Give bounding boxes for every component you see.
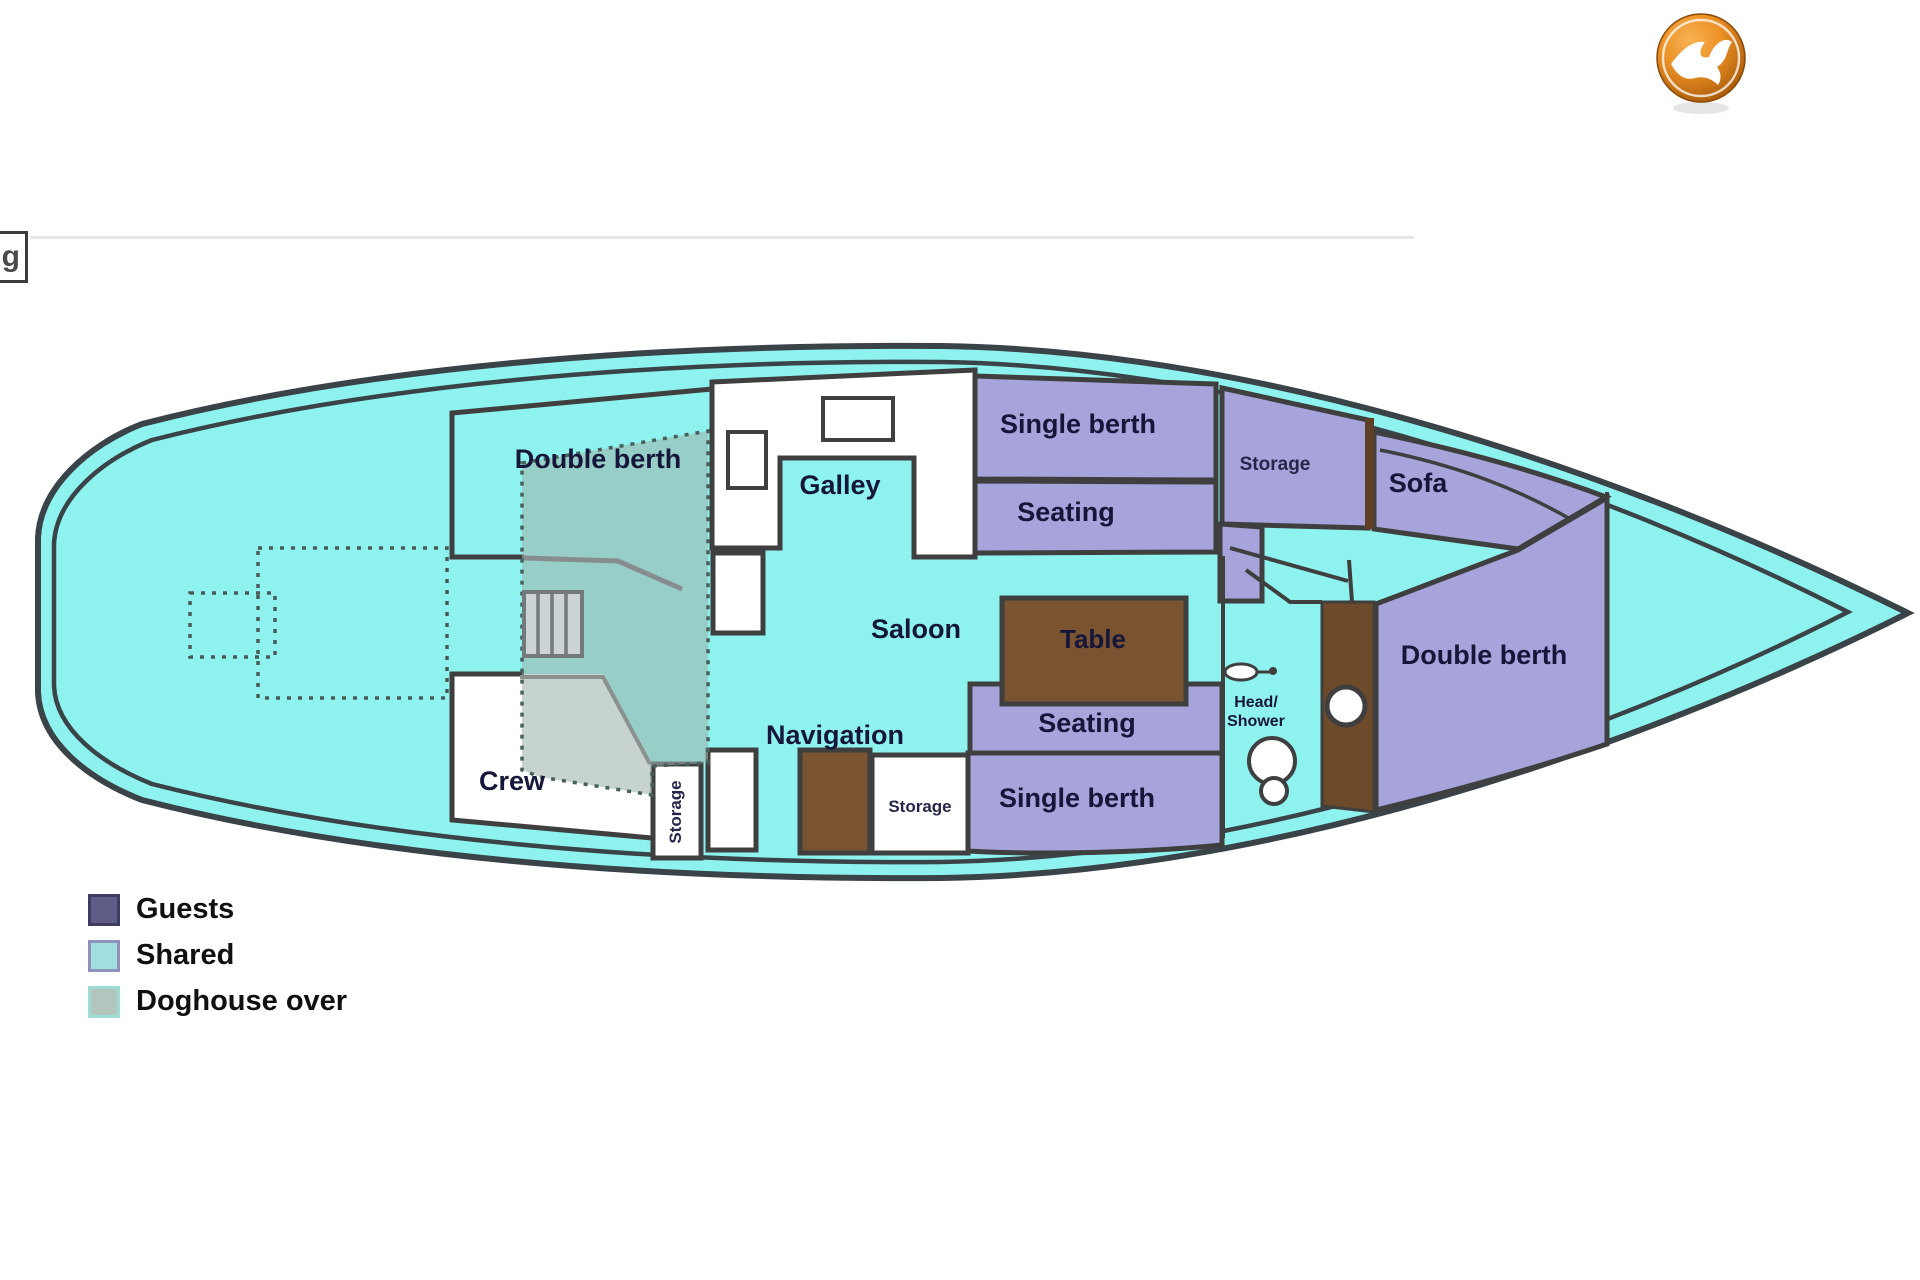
nav-seat-box [708,750,756,850]
label-galley: Galley [799,470,880,500]
label-single-berth-top: Single berth [1000,409,1156,439]
label-double-berth-fwd: Double berth [1401,640,1568,670]
label-head-shower-2: Shower [1227,713,1285,730]
label-navigation: Navigation [766,720,904,750]
label-storage-companionway: Storage [666,780,685,843]
label-seating-top: Seating [1017,497,1115,527]
toilet-seat-icon [1261,778,1287,804]
wood-divider [1365,418,1374,529]
galley-stove-icon [823,398,893,440]
locker-purple [1220,524,1262,601]
label-sofa: Sofa [1389,468,1448,498]
mast-icon [1327,687,1365,725]
label-storage-top: Storage [1240,454,1311,475]
chart-table [800,750,870,853]
legend-item-guests: Guests [88,893,347,926]
sink-tap-dot [1269,667,1277,675]
label-crew: Crew [479,766,546,796]
legend-label-shared: Shared [136,939,234,972]
deck-plan: Double berth Galley Saloon Single berth … [0,0,1920,1280]
legend-label-guests: Guests [136,893,234,926]
label-seating-mid: Seating [1038,708,1136,738]
galley-sink-icon [728,432,766,488]
label-double-berth-aft: Double berth [515,444,682,474]
label-saloon: Saloon [871,614,961,644]
label-single-berth-bottom: Single berth [999,783,1155,813]
legend: Guests Shared Doghouse over [88,893,347,1031]
sink-icon [1225,664,1257,680]
legend-swatch-shared [88,940,120,972]
page: { "topbar": { "partial_button_label": "g… [0,0,1920,1280]
locker-box [713,553,763,633]
legend-swatch-guests [88,894,120,926]
label-head-shower-1: Head/ [1234,694,1278,711]
legend-item-shared: Shared [88,939,347,972]
legend-item-doghouse: Doghouse over [88,985,347,1018]
legend-label-doghouse: Doghouse over [136,985,347,1018]
legend-swatch-doghouse [88,986,120,1018]
label-table: Table [1060,624,1126,654]
label-storage-mid: Storage [888,797,951,816]
